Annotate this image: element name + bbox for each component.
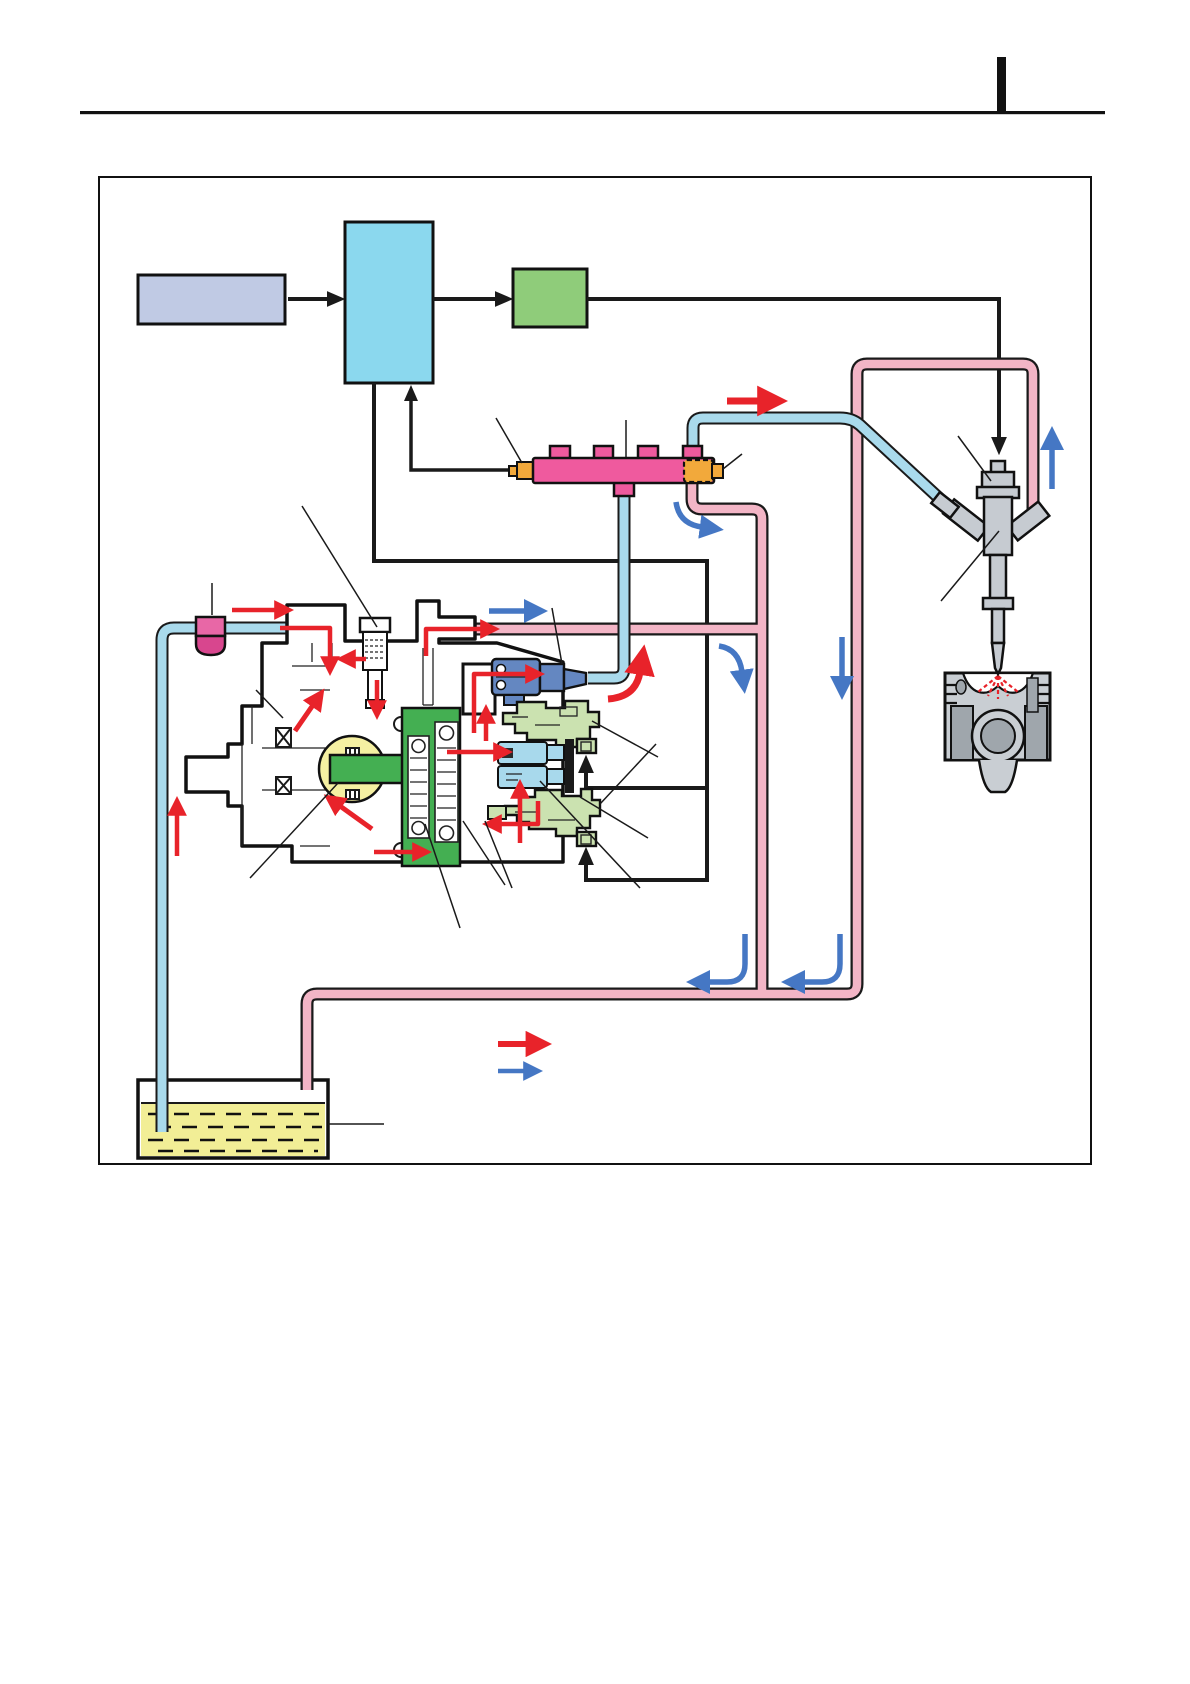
rail-return-pipe [692,481,762,994]
pressure-limiter [684,460,713,482]
pre-filter [196,617,225,655]
flow-legend [498,1044,528,1071]
manual-page [0,0,1190,1684]
rail-to-injector-pipe [693,418,953,511]
injector-ring [983,598,1013,609]
rail-sensor-feedback-wire [411,400,520,470]
connecting-rod [979,760,1017,792]
fuel-system-diagram [0,0,1190,1684]
supply-pump [177,601,640,866]
control-unit-box [345,222,433,383]
tank-fuel [141,1103,325,1156]
valve [1027,678,1038,712]
return-arrow-down-1 [719,646,742,672]
return-arrow-bottom-1 [708,934,745,982]
injector-stem [990,555,1006,599]
piston-cylinder [945,673,1050,792]
return-arrow-bottom-2 [803,934,840,982]
injector-nozzle [992,643,1004,674]
pressure-limiter-nub [712,464,723,478]
inlet-connector [931,492,959,518]
injector-lower-stem [992,609,1004,643]
driver-box [513,269,587,327]
header-rule [80,111,1105,114]
block-diagram [138,222,587,383]
injector-body [984,497,1012,555]
ecu-to-pump-wire-branch [586,772,707,788]
pressure-sensor [517,462,534,479]
input-box [138,275,285,324]
drive-shaft [330,755,404,783]
page-header [80,57,1105,114]
margin-tab-bar [997,57,1006,113]
